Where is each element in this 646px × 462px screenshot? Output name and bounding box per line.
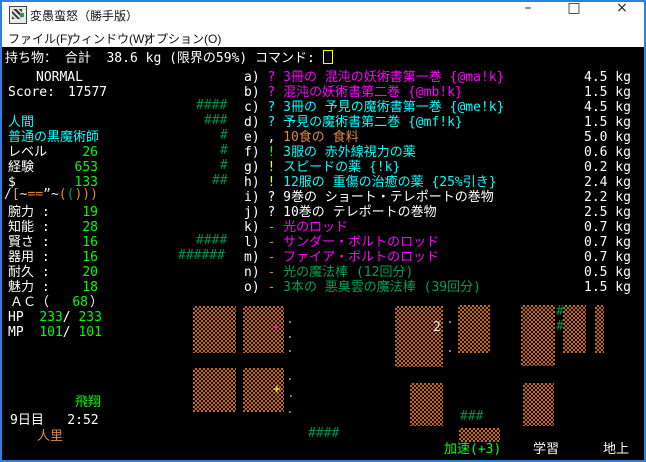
ac-value: 68 xyxy=(56,296,88,310)
inventory-item-k: k) - 光のロッド xyxy=(244,221,348,235)
menu-options[interactable]: オプション(O) xyxy=(144,30,221,47)
mp-max: 101 xyxy=(78,325,101,340)
hp-max: 233 xyxy=(78,310,101,325)
item-weight: 0.2 kg xyxy=(584,161,631,175)
map-glyph: # xyxy=(220,144,228,158)
stat-value: 19 xyxy=(56,206,98,220)
inventory-item-m: m) - ファイア・ボルトのロッド xyxy=(244,251,439,265)
hp-slash: / xyxy=(63,310,79,325)
app-icon xyxy=(9,6,27,24)
map-glyph: # xyxy=(220,129,228,143)
inventory-item-n: n) - 光の魔法棒 (12回分) xyxy=(244,266,413,280)
inventory-item-f: f) ! 3服の 赤外線視力の薬 xyxy=(244,146,416,160)
ac-close: ） xyxy=(90,296,103,310)
stat-label: 魅力 : xyxy=(8,281,50,295)
inventory-item-l: l) - サンダー・ボルトのロッド xyxy=(244,236,439,250)
map-glyph: # xyxy=(556,305,564,319)
item-weight: 4.5 kg xyxy=(584,101,631,115)
map-glyph: # xyxy=(220,159,228,173)
item-weight: 0.7 kg xyxy=(584,251,631,265)
inventory-item-a: a) ? 3冊の 混沌の妖術書第一巻 {@ma!k} xyxy=(244,71,504,85)
equipment-symbol: ( xyxy=(59,187,67,202)
equipment-line: /[~==”~(())) xyxy=(4,188,98,202)
mp-spacer xyxy=(24,325,40,340)
map-building-block xyxy=(521,305,555,366)
inventory-header-text: 持ち物： 合計 38.6 kg (限界の59%) コマンド: xyxy=(5,51,323,66)
mp-label: MP xyxy=(8,325,24,340)
map-glyph: #### xyxy=(196,234,227,248)
equipment-symbol: [ xyxy=(12,187,20,202)
mp-current: 101 xyxy=(39,325,62,340)
item-weight: 0.5 kg xyxy=(584,266,631,280)
map-glyph: + xyxy=(272,321,280,335)
inventory-item-g: g) ! スピードの薬 {!k} xyxy=(244,161,400,175)
item-weight: 2.5 kg xyxy=(584,206,631,220)
map-building-block xyxy=(395,306,443,367)
map-glyph: . xyxy=(286,342,294,356)
mp-slash: / xyxy=(63,325,79,340)
map-glyph: # xyxy=(556,320,564,334)
equipment-symbol: ) xyxy=(90,187,98,202)
map-glyph: . xyxy=(287,387,295,401)
score-value: 17577 xyxy=(68,86,107,100)
inventory-item-d: d) ? 予見の魔術書第二巻 {@mf!k} xyxy=(244,116,463,130)
inventory-item-j: j) ? 10巻の テレポートの巻物 xyxy=(244,206,437,220)
map-building-block xyxy=(563,305,586,353)
stat-value: 16 xyxy=(56,236,98,250)
stat-label: 耐久 : xyxy=(8,266,50,280)
map-building-block xyxy=(523,383,554,426)
close-button[interactable]: × xyxy=(600,0,644,28)
race-label: 人間 xyxy=(8,116,34,130)
item-weight: 1.5 kg xyxy=(584,281,631,295)
hp-spacer xyxy=(24,310,40,325)
stat-value: 18 xyxy=(56,281,98,295)
equipment-symbol: / xyxy=(4,187,12,202)
progress-value: 653 xyxy=(58,161,98,175)
map-glyph: . xyxy=(286,328,294,342)
map-building-block xyxy=(193,368,236,412)
state-label: NORMAL xyxy=(36,71,83,85)
item-weight: 2.2 kg xyxy=(584,191,631,205)
menu-window[interactable]: ウィンドウ(W) xyxy=(69,30,148,47)
map-building-block xyxy=(193,306,236,353)
map-glyph: 2 xyxy=(433,321,441,335)
inventory-item-h: h) ! 12服の 重傷の治癒の薬 {25%引き} xyxy=(244,176,497,190)
inventory-item-o: o) - 3本の 悪臭雲の魔法棒 (39回分) xyxy=(244,281,481,295)
map-glyph: ### xyxy=(460,410,483,424)
hp-label: HP xyxy=(8,310,24,325)
app-window: 変愚蛮怒（勝手版） – □ × ファイル(F) ウィンドウ(W) オプション(O… xyxy=(0,0,646,462)
maximize-button[interactable]: □ xyxy=(552,0,596,28)
equipment-symbol: ” xyxy=(43,187,51,202)
item-weight: 2.4 kg xyxy=(584,176,631,190)
menu-bar: ファイル(F) ウィンドウ(W) オプション(O) xyxy=(0,28,646,47)
item-weight: 0.7 kg xyxy=(584,221,631,235)
depth-status: 地上 xyxy=(603,443,629,457)
class-label: 普通の黒魔術師 xyxy=(8,131,99,145)
inventory-item-c: c) ? 3冊の 予見の魔術書第一巻 {@me!k} xyxy=(244,101,504,115)
map-glyph: #### xyxy=(308,427,339,441)
map-glyph: . xyxy=(286,370,294,384)
progress-label: 経験 xyxy=(8,161,34,175)
inventory-header-line: 持ち物： 合計 38.6 kg (限界の59%) コマンド: xyxy=(5,50,333,66)
map-building-block xyxy=(459,428,500,442)
location-label: 人里 xyxy=(37,430,63,444)
item-weight: 0.6 kg xyxy=(584,146,631,160)
stat-label: 器用 : xyxy=(8,251,50,265)
terminal-layer: ###############################++2......… xyxy=(0,0,646,462)
stat-value: 16 xyxy=(56,251,98,265)
menu-file[interactable]: ファイル(F) xyxy=(8,30,71,47)
study-status: 学習 xyxy=(533,443,559,457)
item-weight: 1.5 kg xyxy=(584,116,631,130)
equipment-symbol: ~ xyxy=(51,187,59,202)
stat-label: 知能 : xyxy=(8,221,50,235)
map-glyph: ###### xyxy=(178,249,225,263)
hp-line: HP 233/ 233 xyxy=(8,311,102,325)
map-glyph: . xyxy=(286,313,294,327)
stat-label: 賢さ : xyxy=(8,236,50,250)
item-weight: 0.7 kg xyxy=(584,236,631,250)
stat-label: 腕力 : xyxy=(8,206,50,220)
minimize-button[interactable]: – xyxy=(506,0,550,28)
stat-value: 28 xyxy=(56,221,98,235)
map-building-block xyxy=(595,305,604,353)
map-glyph: ### xyxy=(204,114,227,128)
map-glyph: . xyxy=(286,403,294,417)
map-glyph: #### xyxy=(196,99,227,113)
map-glyph: ## xyxy=(212,174,228,188)
ac-label: ＡＣ（ xyxy=(10,296,49,310)
window-title: 変愚蛮怒（勝手版） xyxy=(30,7,138,24)
map-glyph: + xyxy=(273,383,281,397)
mp-line: MP 101/ 101 xyxy=(8,326,102,340)
map-building-block xyxy=(458,305,490,353)
equipment-symbol: = xyxy=(35,187,43,202)
item-weight: 1.5 kg xyxy=(584,86,631,100)
score-label: Score: xyxy=(8,86,55,100)
levitation-status: 飛翔 xyxy=(75,396,101,410)
progress-label: レベル xyxy=(8,146,47,160)
stat-value: 20 xyxy=(56,266,98,280)
speed-status: 加速(+3) xyxy=(444,443,501,457)
inventory-item-e: e) , 10食の 食料 xyxy=(244,131,359,145)
text-cursor xyxy=(323,50,333,64)
map-building-block xyxy=(410,383,443,426)
item-weight: 4.5 kg xyxy=(584,71,631,85)
map-glyph: . xyxy=(446,313,454,327)
inventory-item-i: i) ? 9巻の ショート・テレポートの巻物 xyxy=(244,191,494,205)
title-bar[interactable]: 変愚蛮怒（勝手版） – □ × xyxy=(0,0,646,28)
game-day-time: 9日目 2:52 xyxy=(10,414,99,428)
map-glyph: . xyxy=(446,342,454,356)
hp-current: 233 xyxy=(39,310,62,325)
inventory-item-b: b) ? 混沌の妖術書第二巻 {@mb!k} xyxy=(244,86,463,100)
equipment-symbol: ) xyxy=(82,187,90,202)
item-weight: 5.0 kg xyxy=(584,131,631,145)
progress-value: 26 xyxy=(58,146,98,160)
